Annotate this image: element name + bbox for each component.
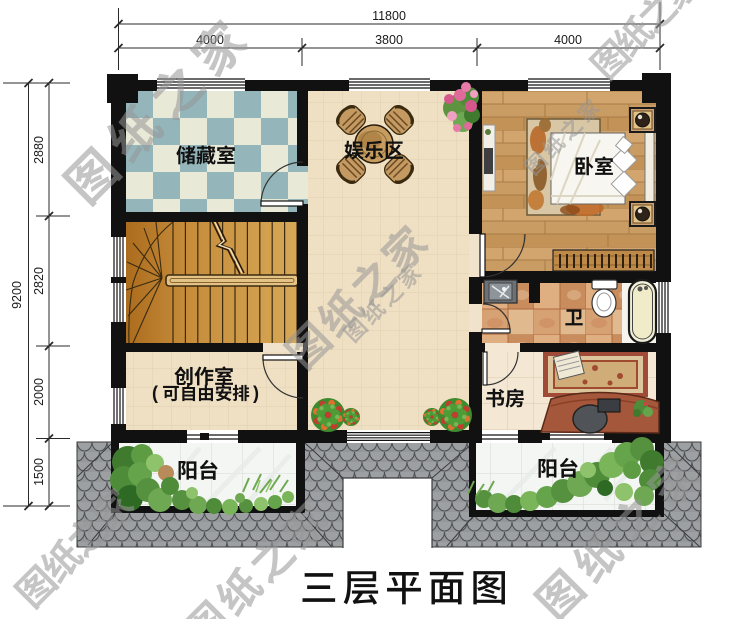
svg-text:2880: 2880 bbox=[32, 136, 46, 164]
svg-text:1500: 1500 bbox=[32, 458, 46, 486]
svg-text:(: ( bbox=[152, 383, 158, 403]
svg-text:4000: 4000 bbox=[554, 33, 582, 47]
svg-text:2000: 2000 bbox=[32, 378, 46, 406]
svg-text:9200: 9200 bbox=[10, 281, 24, 309]
svg-text:): ) bbox=[253, 383, 259, 403]
svg-text:3800: 3800 bbox=[375, 33, 403, 47]
svg-text:2820: 2820 bbox=[32, 267, 46, 295]
svg-text:11800: 11800 bbox=[372, 9, 406, 23]
